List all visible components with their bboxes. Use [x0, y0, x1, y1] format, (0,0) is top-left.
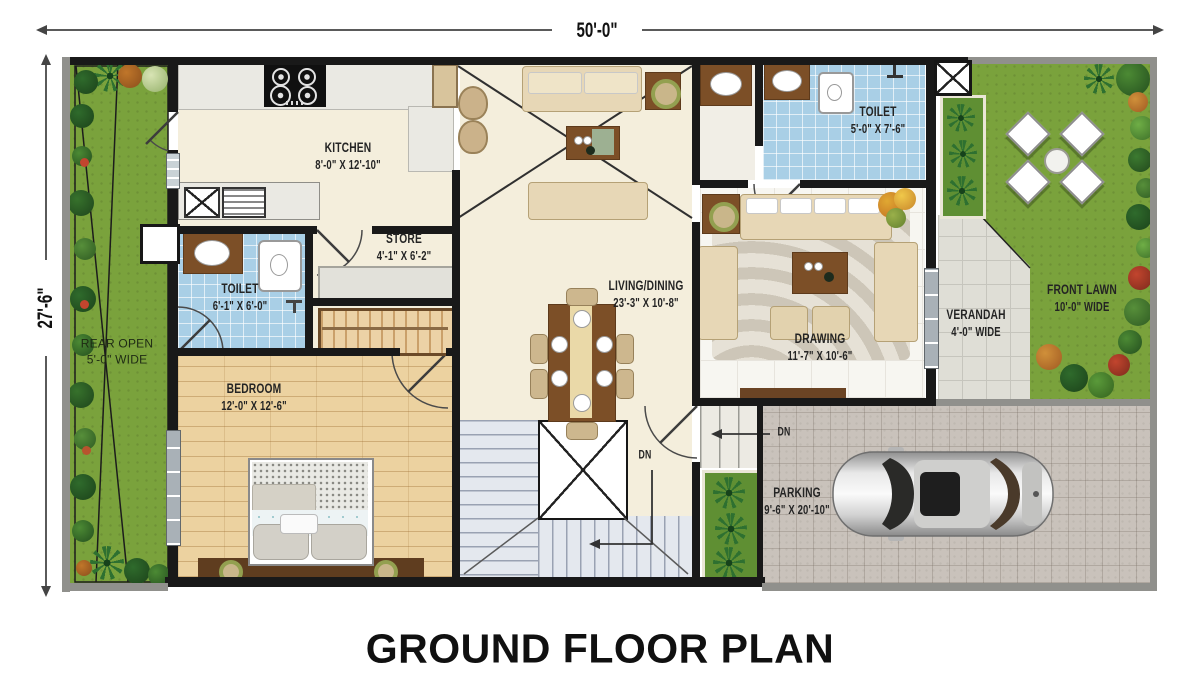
dimension-arrow-down-icon	[41, 586, 51, 597]
wall	[168, 62, 178, 112]
wall	[168, 544, 178, 577]
bush-icon	[1116, 62, 1150, 96]
compound-wall	[1150, 62, 1157, 591]
garden-table	[1044, 148, 1070, 174]
plate-icon	[596, 336, 613, 353]
stove-knobs-icon	[286, 101, 304, 105]
shower-icon	[887, 75, 903, 78]
bush-icon	[68, 382, 94, 408]
wall	[168, 150, 178, 430]
store-slab	[318, 266, 456, 302]
overall-depth-dimension: 27'-6"	[34, 280, 58, 337]
dining-chair	[566, 422, 598, 440]
bedroom-label: BEDROOM 12'-0" X 12'-6"	[211, 380, 297, 414]
sofa-cushion	[814, 198, 846, 214]
wall	[62, 57, 968, 65]
dimension-arrow-up-icon	[41, 54, 51, 65]
wardrobe-rail	[322, 327, 448, 330]
bush-icon	[74, 70, 98, 94]
table-mat	[592, 129, 614, 155]
left-dimension-line	[45, 64, 47, 260]
wash-basin-icon	[710, 72, 742, 96]
flower-icon	[80, 158, 89, 167]
dimension-arrow-right-icon	[1153, 25, 1164, 35]
coffee-table	[792, 252, 848, 294]
palm-icon	[715, 513, 747, 545]
compound-wall	[62, 57, 70, 592]
living-dining-label: LIVING/DINING 23'-3" X 10'-8"	[597, 277, 696, 311]
compound-wall	[936, 399, 1150, 406]
burner-icon	[272, 68, 290, 86]
window	[166, 430, 181, 546]
plate-icon	[551, 336, 568, 353]
sofa-cushion	[746, 198, 778, 214]
palm-icon	[90, 546, 124, 580]
palm-icon	[713, 477, 745, 509]
palm-icon	[947, 176, 977, 206]
bush-icon	[1128, 148, 1152, 172]
pillow	[311, 524, 367, 560]
drawing-sofa-right	[874, 242, 918, 342]
bush-icon	[1126, 204, 1152, 230]
bush-icon	[70, 474, 96, 500]
verandah-label: VERANDAH 4'-0" WIDE	[937, 306, 1015, 340]
kitchen-sink	[222, 187, 266, 218]
potted-plant-icon	[886, 208, 906, 228]
burner-icon	[298, 68, 316, 86]
left-dimension-line	[45, 356, 47, 586]
fridge	[432, 64, 458, 108]
dining-chair	[530, 334, 548, 364]
bush-icon	[1060, 364, 1088, 392]
overall-width-dimension: 50'-0"	[569, 19, 626, 43]
palm-icon	[713, 547, 745, 579]
drawing-sofa-left	[698, 246, 738, 340]
bush-icon	[1088, 372, 1114, 398]
dining-chair	[616, 369, 634, 399]
floor-plan-page: 50'-0" 27'-6"	[0, 0, 1200, 700]
wall	[700, 398, 936, 406]
wall	[692, 57, 700, 185]
stair-down-label: DN	[636, 449, 653, 464]
flower-icon	[1128, 92, 1148, 112]
verandah-planter	[940, 95, 986, 219]
wall	[168, 226, 317, 234]
wc-bowl-icon	[827, 84, 842, 101]
compound-wall	[62, 583, 168, 591]
round-rug	[651, 79, 681, 109]
stair-down-arrow	[589, 470, 652, 549]
plate-icon	[596, 370, 613, 387]
wash-basin-icon	[772, 70, 802, 92]
wall	[692, 462, 700, 585]
wall	[800, 180, 930, 188]
wall	[755, 62, 763, 146]
small-pillow	[280, 514, 318, 534]
bush-icon	[68, 190, 94, 216]
wall	[692, 222, 700, 406]
flower-icon	[80, 300, 89, 309]
bush-icon	[142, 66, 168, 92]
rear-open-label: REAR OPEN 5'-0" WIDE	[81, 336, 153, 367]
wall	[446, 348, 460, 356]
sofa-cushion	[528, 72, 582, 94]
bar-stool	[458, 86, 488, 120]
car	[830, 446, 1056, 542]
wall	[168, 348, 400, 356]
dishwasher-icon	[184, 187, 220, 218]
flower-icon	[1108, 354, 1130, 376]
plate-icon	[573, 394, 591, 412]
bush-icon	[76, 560, 92, 576]
plan-title: GROUND FLOOR PLAN	[366, 626, 835, 673]
drawing-label: DRAWING 11'-7" X 10'-6"	[777, 330, 862, 364]
bush-icon	[70, 104, 94, 128]
compound-wall	[762, 583, 1150, 591]
cup-icon	[814, 262, 823, 271]
dining-chair	[616, 334, 634, 364]
round-rug	[709, 202, 739, 232]
sofa-cushion	[584, 72, 638, 94]
bush-icon	[118, 64, 142, 88]
palm-icon	[947, 104, 975, 132]
wash-basin-icon	[194, 240, 230, 266]
dining-chair	[566, 288, 598, 306]
flower-icon	[1128, 266, 1152, 290]
cup-icon	[804, 262, 813, 271]
flower-icon	[82, 446, 91, 455]
top-dimension-line	[44, 29, 552, 31]
bar-stool	[458, 120, 488, 154]
cup-icon	[583, 136, 592, 145]
wall	[165, 577, 765, 587]
living-sofa-bottom	[528, 182, 648, 220]
bush-icon	[1124, 298, 1152, 326]
rear-toilet-label: TOILET 6'-1" X 6'-0"	[204, 280, 276, 314]
bush-icon	[72, 520, 94, 542]
sofa-cushion	[848, 198, 880, 214]
parking-label: PARKING 9'-6" X 20'-10"	[754, 484, 840, 518]
entry-down-label: DN	[775, 426, 792, 441]
bush-icon	[124, 558, 150, 584]
wc-bowl-icon	[270, 254, 288, 276]
shower-icon	[293, 303, 296, 313]
kitchen-counter-side	[408, 106, 454, 172]
flower-icon	[1036, 344, 1062, 370]
wall	[926, 367, 936, 406]
wall	[305, 233, 313, 356]
wall	[313, 298, 460, 306]
bowl-icon	[824, 272, 834, 282]
front-toilet-label: TOILET 5'-0" X 7'-6"	[842, 103, 914, 137]
potted-plant-icon	[894, 188, 916, 210]
window	[166, 153, 180, 189]
compound-wall	[968, 57, 1157, 64]
plate-icon	[551, 370, 568, 387]
store-label: STORE 4'-1" X 6'-2"	[368, 230, 440, 264]
tree-icon	[1084, 64, 1114, 94]
sofa-cushion	[780, 198, 812, 214]
palm-icon	[949, 140, 977, 168]
top-dimension-line	[642, 29, 1160, 31]
bowl-icon	[586, 146, 595, 155]
rear-plot-lines	[75, 62, 168, 582]
plate-icon	[573, 310, 591, 328]
kitchen-label: KITCHEN 8'-0" X 12'-10"	[305, 139, 391, 173]
dining-chair	[530, 369, 548, 399]
front-lawn-label: FRONT LAWN 10'-0" WIDE	[1036, 281, 1128, 315]
cup-icon	[574, 136, 583, 145]
dimension-arrow-left-icon	[36, 25, 47, 35]
wall	[700, 180, 748, 188]
stair-diagonals	[464, 518, 688, 574]
bush-icon	[1118, 330, 1142, 354]
duct-shaft	[934, 60, 972, 96]
duct-shaft	[140, 224, 180, 264]
bush-icon	[74, 238, 96, 260]
